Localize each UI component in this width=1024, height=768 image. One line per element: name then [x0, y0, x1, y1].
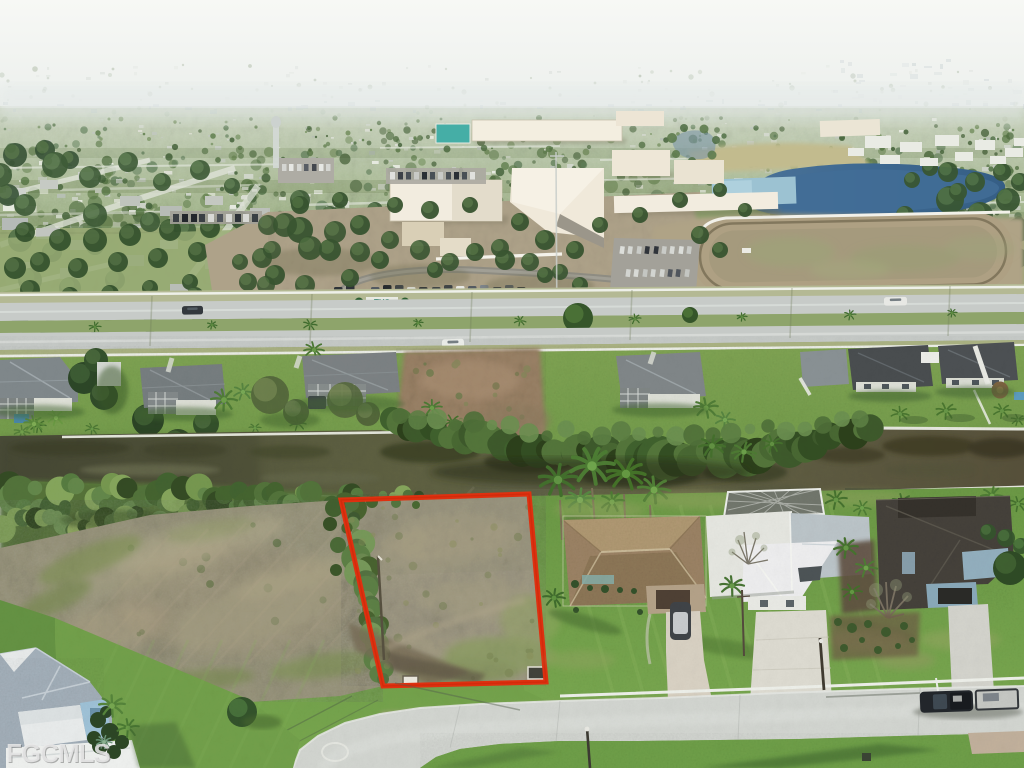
svg-text:FGCMLS: FGCMLS [6, 738, 110, 768]
